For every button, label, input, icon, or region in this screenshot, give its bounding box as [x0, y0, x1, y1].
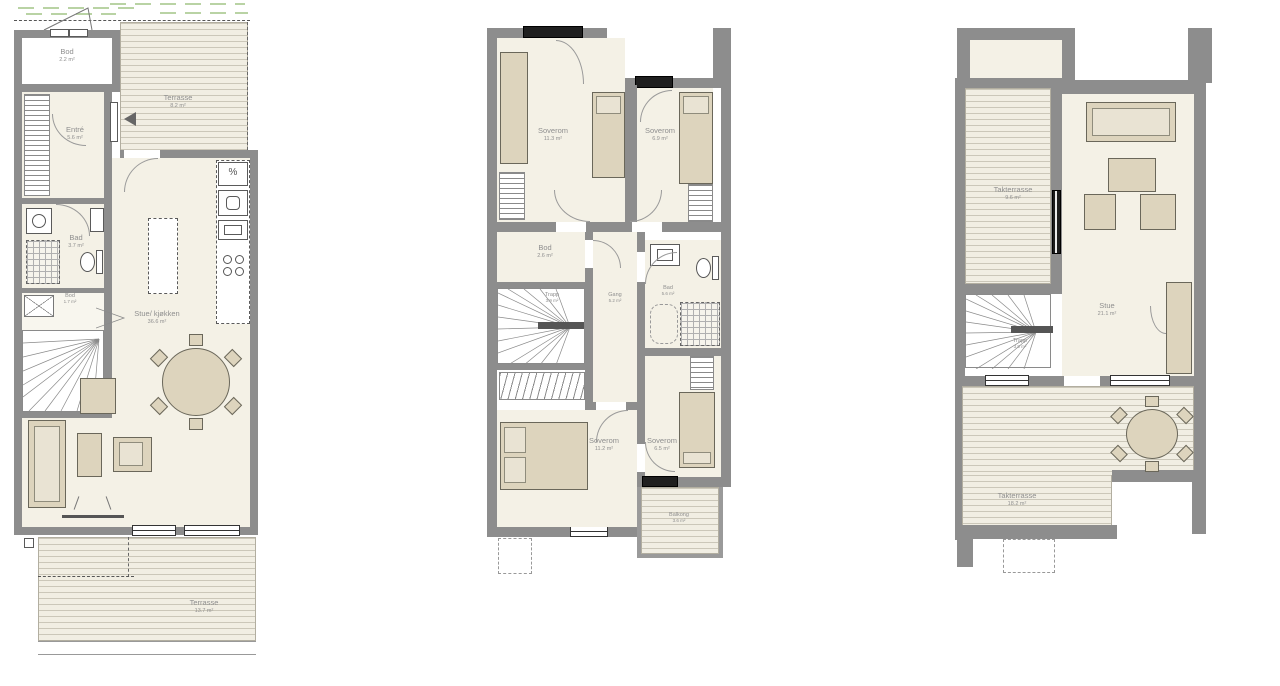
wall-bottom-stub [957, 539, 973, 567]
wall-stub-right [1062, 28, 1075, 85]
floor-plan-3: Takterrasse 9.6 m² Stue 21.1 m² [0, 0, 1280, 686]
wall-terrace-bottom [955, 525, 1117, 539]
coffee-table [1108, 158, 1156, 192]
stub-floor [970, 40, 1062, 82]
dashed-outline [1003, 539, 1055, 573]
wall-top-stue [1040, 80, 1206, 94]
wall-stub-b [1188, 28, 1212, 83]
wall-stub-left [957, 28, 970, 85]
wall-right [1194, 80, 1206, 480]
armchair [1140, 194, 1176, 230]
wall-stub-top [957, 28, 1075, 40]
outdoor-table [1126, 409, 1178, 459]
outdoor-chair [1145, 461, 1159, 472]
door-gap [1064, 376, 1100, 386]
wall-notch-right [1192, 482, 1206, 534]
wall-stair-top [955, 284, 1062, 294]
sofa-seat [1092, 108, 1170, 136]
stair-handrail [1011, 326, 1053, 333]
deck-takterrasse-2b [962, 475, 1112, 530]
sideboard [1166, 282, 1192, 374]
window [985, 375, 1029, 386]
terrace-door-dark [1052, 190, 1061, 254]
floor-plan-sheet: Terrasse 8.2 m² Bod 2.2 m² [0, 0, 1280, 686]
outdoor-chair [1145, 396, 1159, 407]
deck-takterrasse-1 [965, 88, 1051, 284]
armchair [1084, 194, 1116, 230]
wall-deck-stue [1051, 80, 1062, 292]
window [1110, 375, 1170, 386]
wall-notch-top [1112, 470, 1206, 482]
